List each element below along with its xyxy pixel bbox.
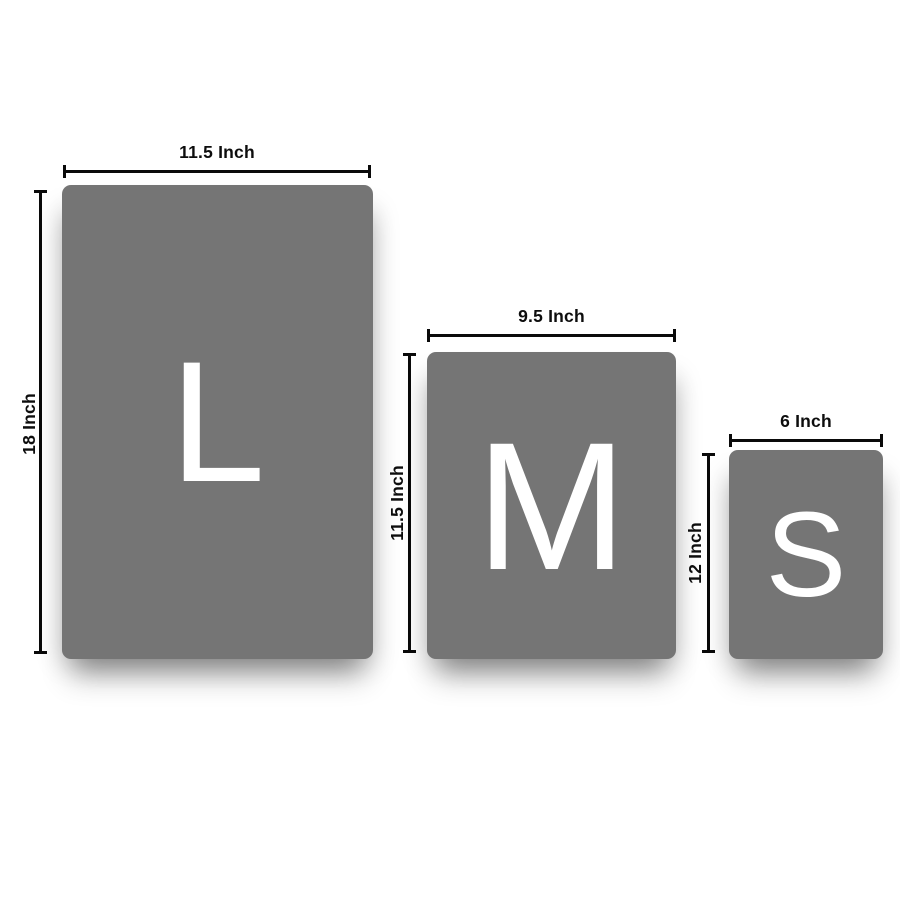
width-dimension-label-small: 6 Inch [729, 410, 883, 432]
size-letter-large: L [170, 336, 266, 508]
size-card-large: L [62, 185, 373, 659]
width-dimension-label-large: 11.5 Inch [63, 141, 371, 163]
height-dimension-label-small: 12 Inch [684, 483, 706, 623]
height-dimension-line-medium [408, 353, 411, 653]
size-letter-small: S [766, 494, 847, 615]
width-dimension-line-large [63, 170, 371, 173]
size-letter-medium: M [476, 415, 628, 597]
height-dimension-label-large: 18 Inch [18, 354, 40, 494]
height-dimension-line-small [707, 453, 710, 653]
size-card-small: S [729, 450, 883, 659]
width-dimension-line-small [729, 439, 883, 442]
height-dimension-label-medium: 11.5 Inch [386, 433, 408, 573]
width-dimension-label-medium: 9.5 Inch [427, 305, 676, 327]
size-chart: 11.5 Inch 18 Inch L 9.5 Inch 11.5 Inch M… [0, 0, 900, 900]
size-card-medium: M [427, 352, 676, 659]
width-dimension-line-medium [427, 334, 676, 337]
height-dimension-line-large [39, 190, 42, 654]
